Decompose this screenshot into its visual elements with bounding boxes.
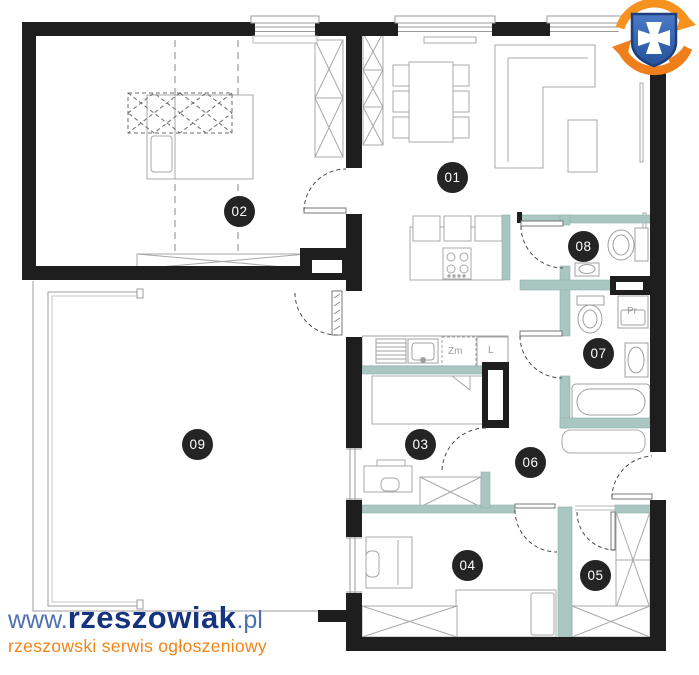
hall-06-furniture <box>562 430 645 453</box>
kitchenette-03 <box>362 336 508 366</box>
label-dishwasher: Zm <box>448 346 462 357</box>
watermark: www.rzeszowiak.pl rzeszowski serwis ogło… <box>8 602 267 657</box>
window-room-01-left <box>395 16 495 36</box>
room-badge-04: 04 <box>452 550 483 581</box>
door-leaf-room-02 <box>304 208 346 213</box>
room-badge-03: 03 <box>405 429 436 460</box>
door-leaf-room-05 <box>611 512 615 550</box>
floor-plan-image: 01 02 03 04 05 06 07 08 09 Zm L Pr www.r… <box>0 0 699 675</box>
window-room-02 <box>251 16 319 43</box>
bedroom-02-furniture <box>128 40 343 269</box>
label-washing-machine: Pr <box>627 306 637 317</box>
room-badge-01: 01 <box>437 162 468 193</box>
stove <box>443 248 471 279</box>
blue-shield-white-cross <box>632 14 676 66</box>
room-badge-08: 08 <box>568 231 599 262</box>
watermark-tagline: rzeszowski serwis ogłoszeniowy <box>8 636 267 657</box>
watermark-url-suffix: .pl <box>236 608 262 633</box>
room-badge-05: 05 <box>580 560 611 591</box>
label-fridge: L <box>488 345 494 356</box>
door-leaf-wc-08 <box>521 221 563 226</box>
door-leaf-room-04 <box>515 504 555 508</box>
watermark-brand: rzeszowiak <box>68 602 237 633</box>
room-badge-07: 07 <box>583 338 614 369</box>
watermark-url: www.rzeszowiak.pl <box>8 602 267 633</box>
window-room-04 <box>346 537 362 593</box>
watermark-url-prefix: www. <box>8 608 68 633</box>
room-badge-09: 09 <box>182 429 213 460</box>
window-room-03 <box>346 448 362 500</box>
room-badge-02: 02 <box>224 196 255 227</box>
door-leaf-bath-07 <box>520 331 562 336</box>
door-leaf-entrance <box>612 494 652 499</box>
rzeszowiak-logo-icon <box>610 0 698 84</box>
room-badge-06: 06 <box>515 447 546 478</box>
